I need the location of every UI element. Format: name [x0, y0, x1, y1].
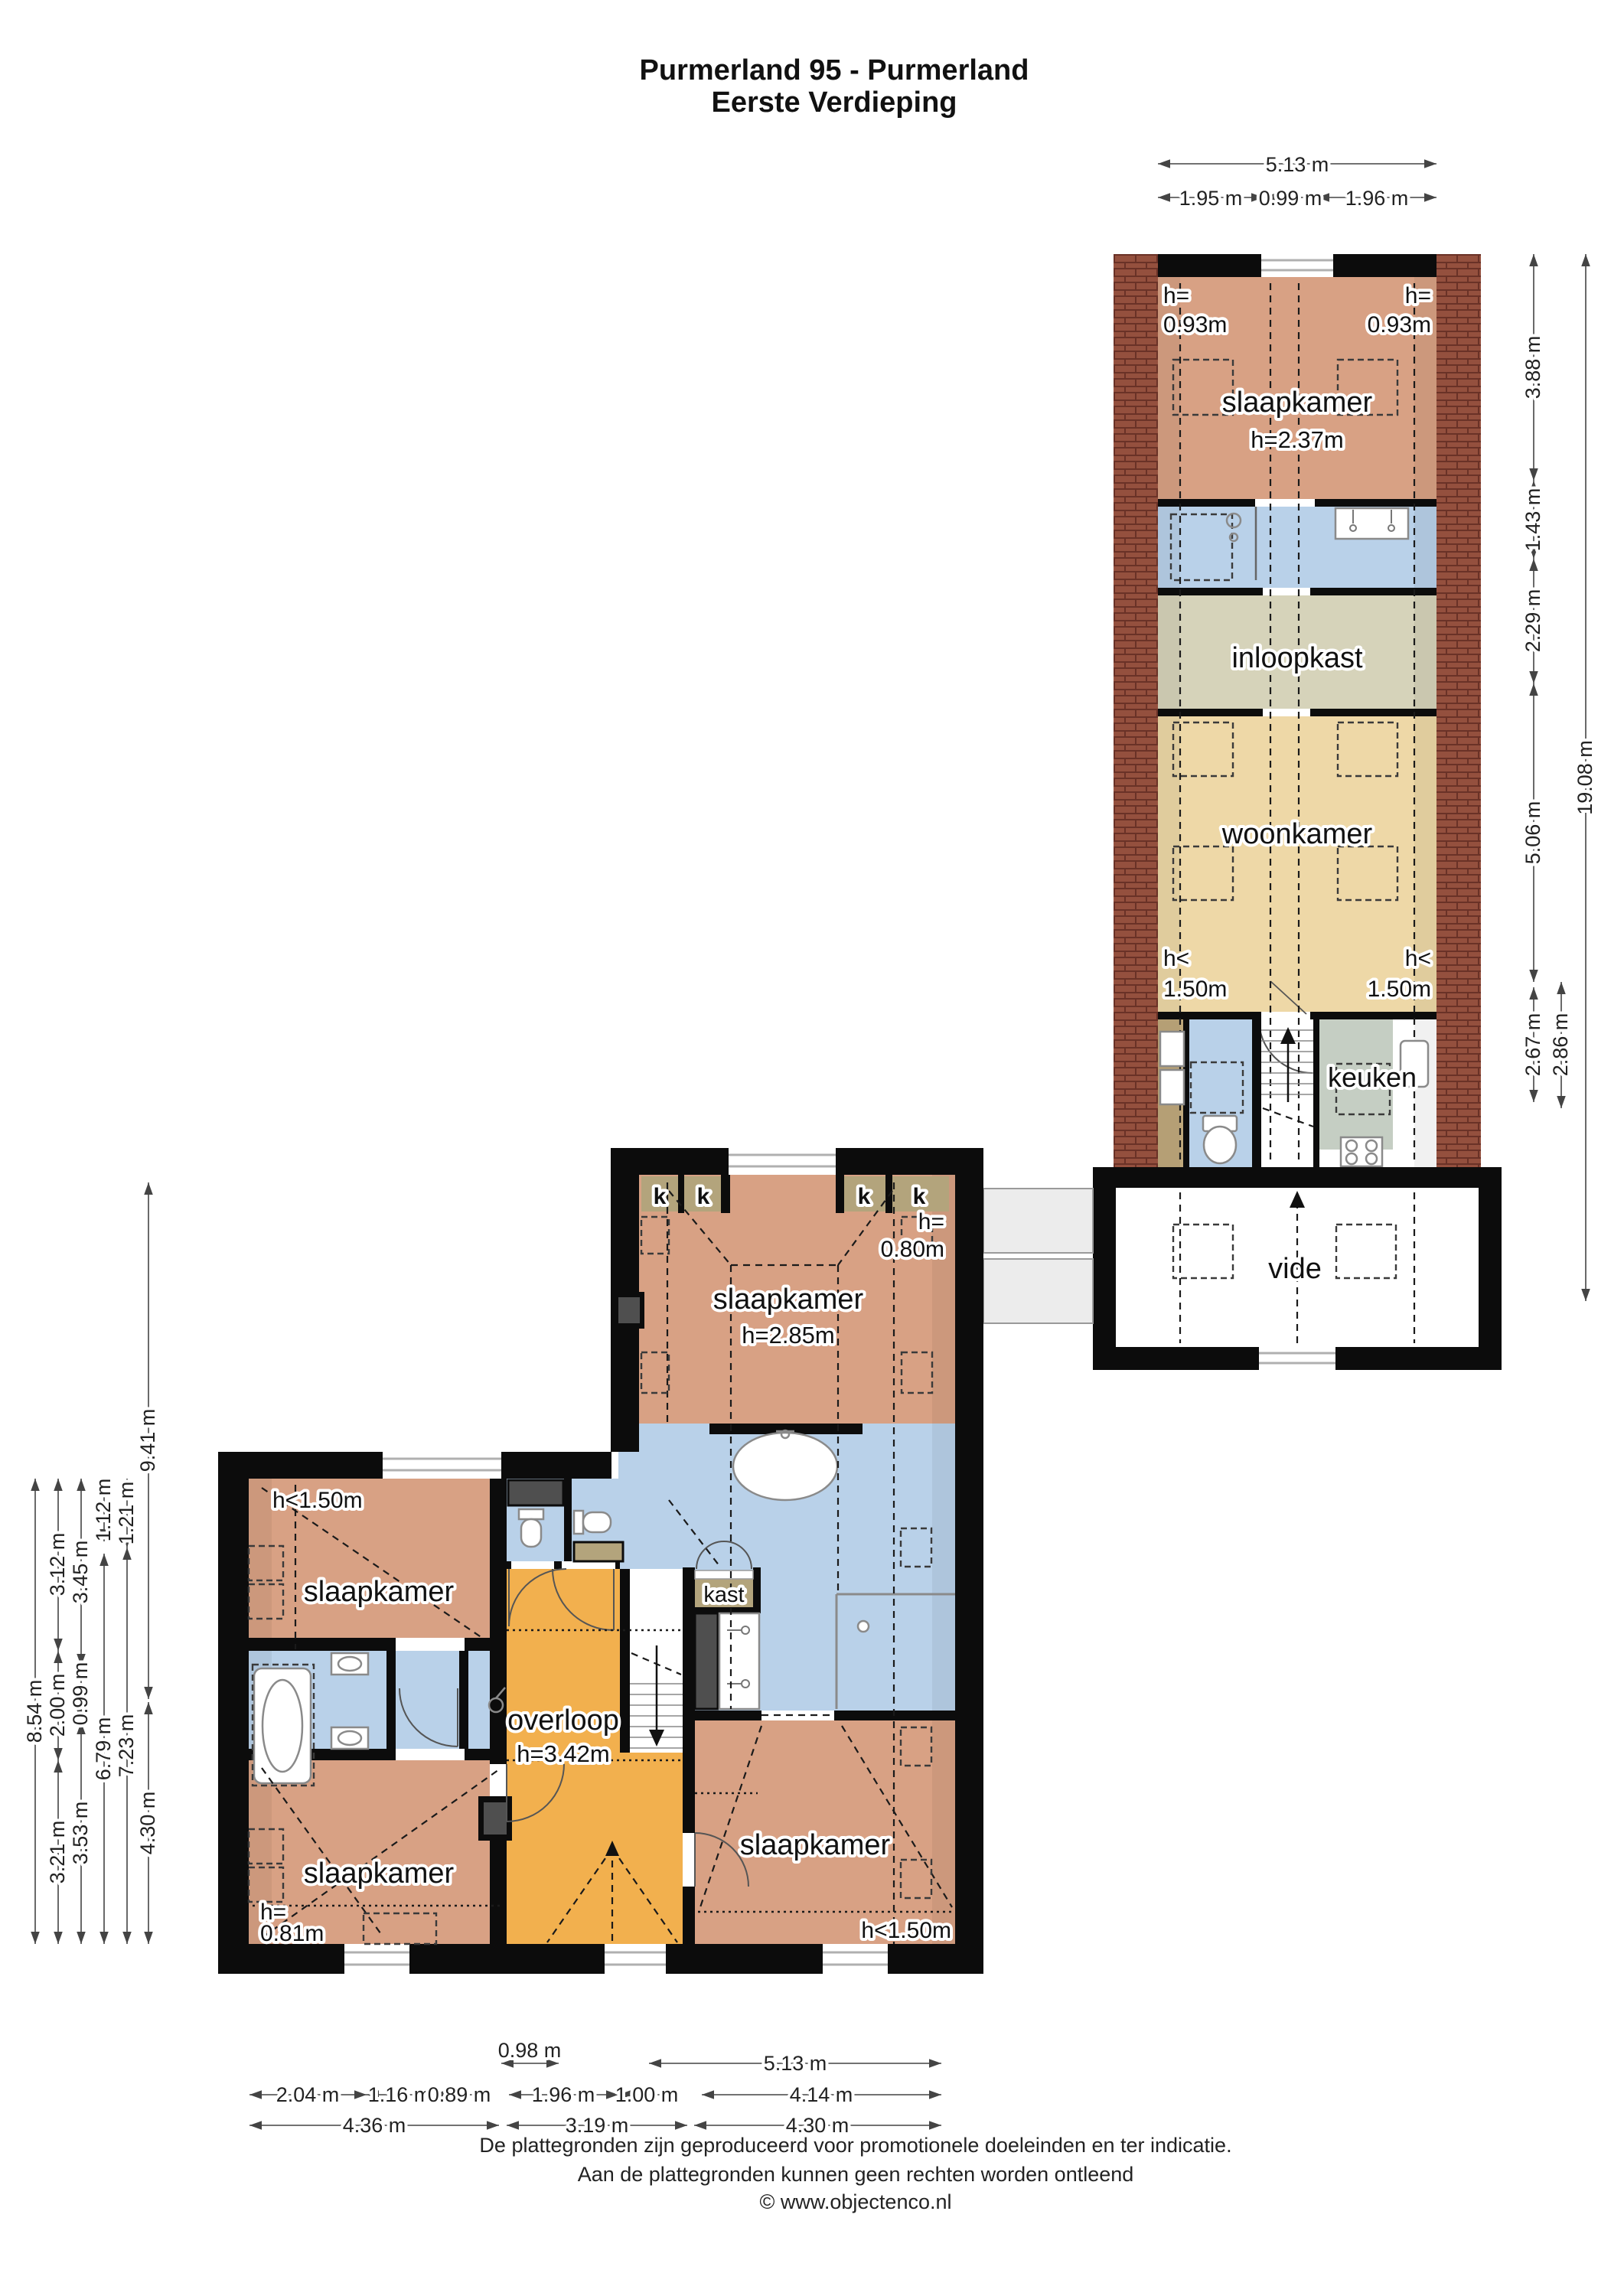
- dim-left-854: 8.54 m: [23, 1680, 46, 1743]
- dim-right-388: 3.88 m: [1521, 336, 1544, 400]
- dim-top-1: 1.95 m: [1179, 187, 1243, 210]
- label-slaapkamer-right: slaapkamer: [740, 1829, 891, 1861]
- dim-right-229: 2.29 m: [1521, 589, 1544, 653]
- label-slaapkamer-top: slaapkamer: [713, 1283, 864, 1316]
- note-h093-tl2: 0.93m: [1163, 312, 1227, 338]
- label-k: k: [858, 1184, 871, 1209]
- connector-slab: [983, 1259, 1093, 1323]
- dim-bottom-204: 2.04 m: [276, 2083, 340, 2106]
- note-h081-2: 0.81m: [260, 1921, 324, 1946]
- note-h093-tl: h=: [1163, 283, 1189, 308]
- dim-bottom-196: 1.96 m: [532, 2083, 595, 2106]
- dim-top-2: 0.99 m: [1259, 187, 1322, 210]
- label-slaapkamer-mid: slaapkamer: [304, 1576, 455, 1608]
- page-title-line1: Purmerland 95 - Purmerland: [640, 54, 1029, 86]
- note-h080-2: 0.80m: [881, 1237, 944, 1262]
- left-building: k k k k h= 0.80m slaapkamer h=2.85m h<1.…: [218, 1148, 983, 1974]
- duct: [618, 1297, 640, 1323]
- dim-left-723: 7.23 m: [115, 1714, 138, 1778]
- dim-bottom-513: 5.13 m: [764, 2052, 827, 2075]
- door-arc: [1259, 1019, 1313, 1073]
- dim-left-345: 3.45 m: [69, 1541, 92, 1604]
- toilet-symbol: [574, 1511, 611, 1534]
- brick-wall-right: [1436, 254, 1481, 1167]
- note-h093-tr: h=: [1405, 283, 1431, 308]
- label-vide: vide: [1268, 1253, 1322, 1285]
- toilet-symbol: [1203, 1116, 1237, 1163]
- note-h150-br: h<: [1405, 946, 1431, 971]
- label-slaapkamer-right-bldg: slaapkamer: [1222, 386, 1373, 419]
- label-k: k: [913, 1184, 926, 1209]
- dim-bottom-436: 4.36 m: [343, 2114, 406, 2137]
- stove-symbol: [1341, 1137, 1382, 1166]
- dim-top-3: 1.96 m: [1345, 187, 1409, 210]
- page-title-line2: Eerste Verdieping: [711, 86, 957, 119]
- note-h150-br2: 1.50m: [1368, 977, 1431, 1002]
- dim-left-312: 3.12 m: [46, 1533, 69, 1596]
- dim-right-267: 2.67 m: [1521, 1013, 1544, 1077]
- dim-bottom-089: 0.89 m: [428, 2083, 491, 2106]
- bathtub-symbol: [254, 1668, 311, 1783]
- duct: [484, 1802, 507, 1835]
- label-inloopkast: inloopkast: [1231, 642, 1363, 674]
- label-k: k: [697, 1184, 710, 1209]
- dim-left-200: 2.00 m: [46, 1674, 69, 1737]
- dim-left-099: 0.99 m: [69, 1662, 92, 1726]
- washer-symbol: [1160, 1032, 1184, 1066]
- note-h150-bl2: 1.50m: [1163, 977, 1227, 1002]
- dim-left-121: 1.21 m: [115, 1482, 138, 1545]
- stairs-up: [1261, 1027, 1313, 1127]
- dim-left-679: 6.79 m: [92, 1717, 115, 1781]
- footer-line-3: © www.objectenco.nl: [759, 2190, 951, 2213]
- label-overloop-h: h=3.42m: [517, 1740, 610, 1767]
- dim-top-total: 5.13 m: [1266, 153, 1329, 176]
- room-woonkamer: [1158, 716, 1436, 1012]
- dim-right-286: 2.86 m: [1549, 1013, 1572, 1077]
- washer-symbol: [1160, 1070, 1184, 1104]
- label-slaapkamer-top-h: h=2.85m: [742, 1322, 835, 1349]
- dim-right-1908: 19.08 m: [1573, 740, 1596, 815]
- label-woonkamer: woonkamer: [1221, 818, 1373, 850]
- vanity-counter: [719, 1613, 759, 1709]
- label-kast: kast: [703, 1583, 744, 1607]
- label-overloop: overloop: [507, 1704, 619, 1737]
- dim-right-143: 1.43 m: [1521, 488, 1544, 552]
- label-slaapkamer-bottom: slaapkamer: [304, 1857, 455, 1890]
- note-h150-bl: h<: [1163, 946, 1189, 971]
- dim-left-321: 3.21 m: [46, 1821, 69, 1884]
- label-slaapkamer-right-bldg-h: h=2.37m: [1251, 426, 1344, 453]
- dim-bottom-098: 0.98 m: [498, 2039, 562, 2062]
- footer-line-2: Aan de plattegronden kunnen geen rechten…: [578, 2163, 1134, 2186]
- brick-wall-left: [1114, 254, 1158, 1167]
- floor-plan-svg: Purmerland 95 - Purmerland Eerste Verdie…: [0, 0, 1624, 2296]
- shelf: [574, 1542, 623, 1561]
- duct: [508, 1480, 563, 1505]
- dim-bottom-100: 1.00 m: [615, 2083, 679, 2106]
- right-building: h= 0.93m h= 0.93m slaapkamer h=2.37m inl…: [983, 254, 1502, 1370]
- dim-left-353: 3.53 m: [69, 1802, 92, 1865]
- dim-right-506: 5.06 m: [1521, 801, 1544, 865]
- dim-left-112: 1.12 m: [92, 1479, 115, 1542]
- footer-line-1: De plattegronden zijn geproduceerd voor …: [479, 2134, 1231, 2157]
- label-keuken: keuken: [1328, 1062, 1417, 1093]
- label-k: k: [654, 1184, 667, 1209]
- duct: [695, 1613, 718, 1709]
- dim-bottom-116: 1.16 m: [368, 2083, 432, 2106]
- dim-bottom-414: 4.14 m: [790, 2083, 853, 2106]
- connector-slab: [983, 1189, 1093, 1253]
- sink-counter: [1335, 508, 1408, 539]
- note-h150-right: h<1.50m: [861, 1918, 951, 1943]
- dim-left-430: 4.30 m: [136, 1792, 159, 1855]
- toilet-symbol: [519, 1509, 543, 1547]
- dim-left-941: 9.41 m: [136, 1409, 159, 1473]
- note-h093-tr2: 0.93m: [1368, 312, 1431, 338]
- slope-shade: [1414, 277, 1436, 1167]
- room-slaapkamer-bottom: [249, 1760, 507, 1944]
- note-h150-lefttop: h<1.50m: [272, 1488, 363, 1513]
- note-h080: h=: [918, 1209, 944, 1234]
